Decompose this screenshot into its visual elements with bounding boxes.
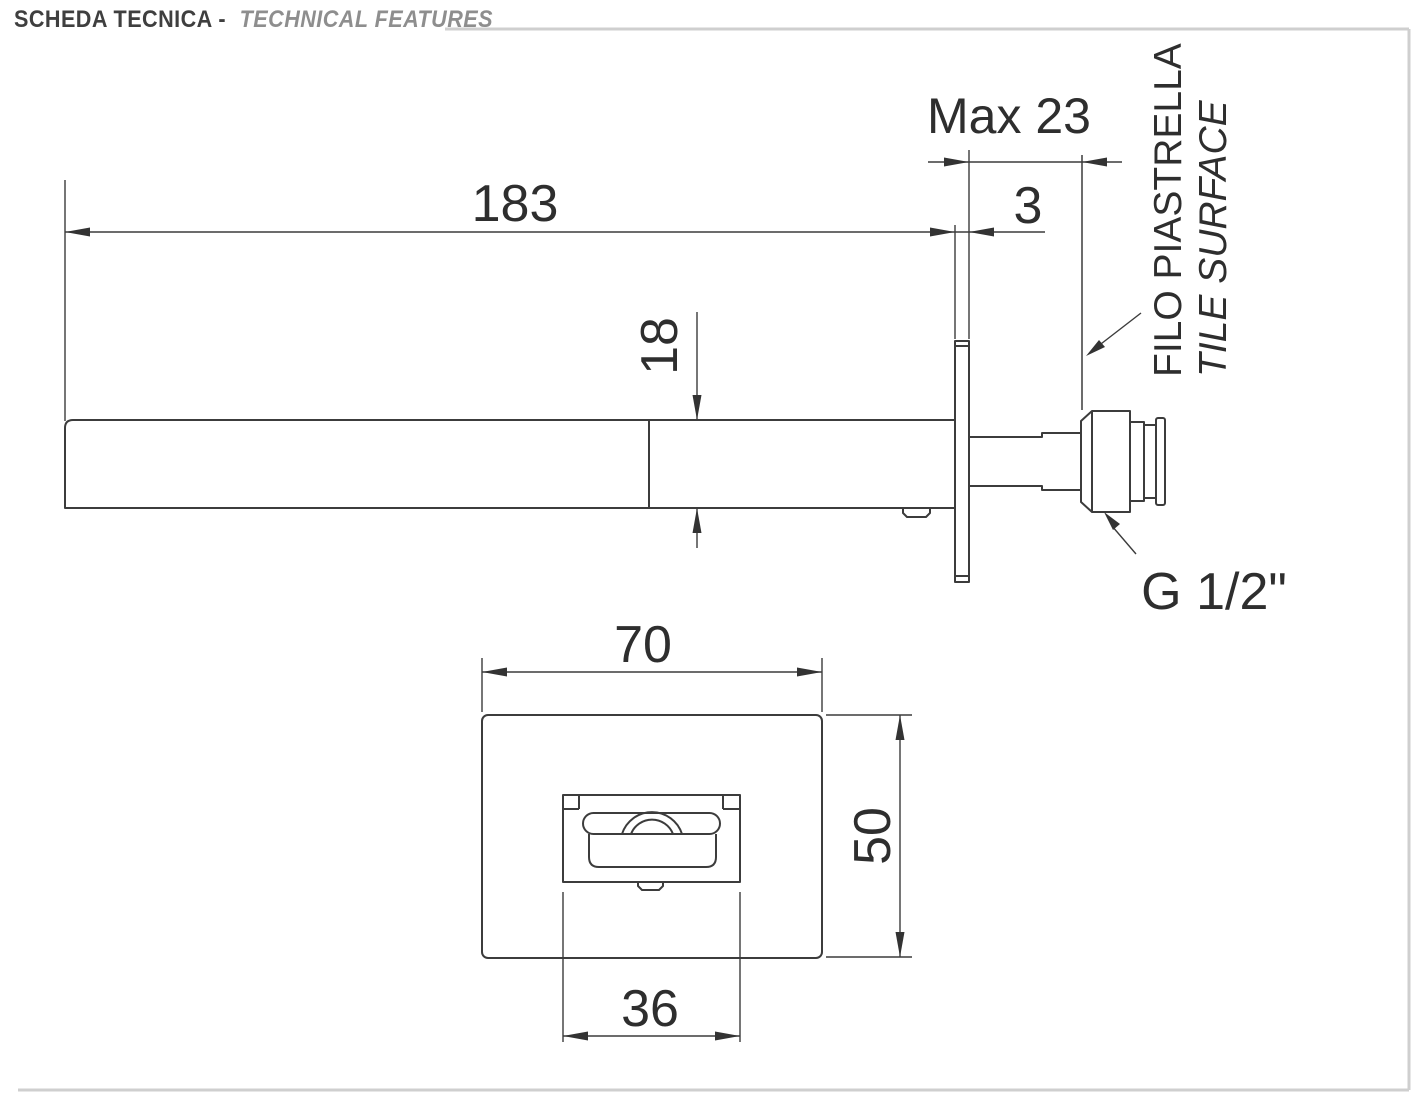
- technical-sheet-page: SCHEDA TECNICA - TECHNICAL FEATURES: [0, 0, 1424, 1094]
- arrow-50-top: [896, 715, 905, 740]
- dimension-lines: [65, 150, 1141, 1042]
- leader-tile-surface: [1097, 313, 1141, 347]
- arrow-70-left: [482, 668, 507, 677]
- dimension-arrowheads: [65, 158, 1120, 1041]
- thread-ring-1: [1130, 422, 1144, 501]
- dim-label-spout-height: 18: [634, 317, 686, 375]
- arrow-50-bottom: [896, 932, 905, 957]
- wall-plate-side: [955, 341, 969, 582]
- supply-pipe-bottom: [969, 486, 1081, 490]
- arrow-70-right: [797, 668, 822, 677]
- aerator-dome-inner: [631, 820, 673, 834]
- arrow-183-left: [65, 228, 90, 237]
- dim-label-plate-width: 70: [614, 619, 672, 671]
- spout-body: [65, 420, 956, 508]
- tile-surface-annotation-italian: FILO PIASTRELLA: [1146, 43, 1191, 377]
- supply-pipe-top: [969, 433, 1081, 437]
- aerator-slot: [583, 813, 720, 834]
- thread-nut: [1081, 411, 1130, 512]
- front-view-object: [482, 715, 822, 958]
- arrow-36-left: [563, 1032, 588, 1041]
- arrow-thread-leader: [1104, 512, 1120, 530]
- front-underside-tab: [638, 882, 663, 890]
- arrow-max23-left: [944, 158, 969, 167]
- tile-surface-annotation-english: TILE SURFACE: [1191, 43, 1236, 377]
- spout-underside-tab: [903, 508, 930, 517]
- wall-plate-front: [482, 715, 822, 958]
- dim-label-spout-width: 36: [621, 983, 679, 1035]
- dim-label-plate-thickness: 3: [1014, 180, 1043, 232]
- arrow-36-right: [715, 1032, 740, 1041]
- thread-size-label: G 1/2": [1141, 566, 1287, 618]
- dim-label-wall-max: Max 23: [927, 91, 1091, 141]
- arrow-3-right: [969, 228, 994, 237]
- arrow-max23-right: [1082, 158, 1107, 167]
- arrow-18-bottom: [693, 508, 702, 533]
- tile-surface-annotation: FILO PIASTRELLA TILE SURFACE: [1146, 43, 1236, 377]
- aerator-chamber: [589, 834, 716, 867]
- side-view-object: [65, 341, 1165, 582]
- arrow-18-top: [693, 395, 702, 420]
- leader-thread: [1112, 526, 1136, 554]
- arrow-183-right: [930, 228, 955, 237]
- aerator-dome-outer: [622, 812, 682, 834]
- thread-ring-2: [1144, 425, 1156, 498]
- thread-flange: [1156, 418, 1165, 505]
- dim-label-plate-height: 50: [847, 807, 899, 865]
- dim-label-spout-length: 183: [472, 178, 559, 230]
